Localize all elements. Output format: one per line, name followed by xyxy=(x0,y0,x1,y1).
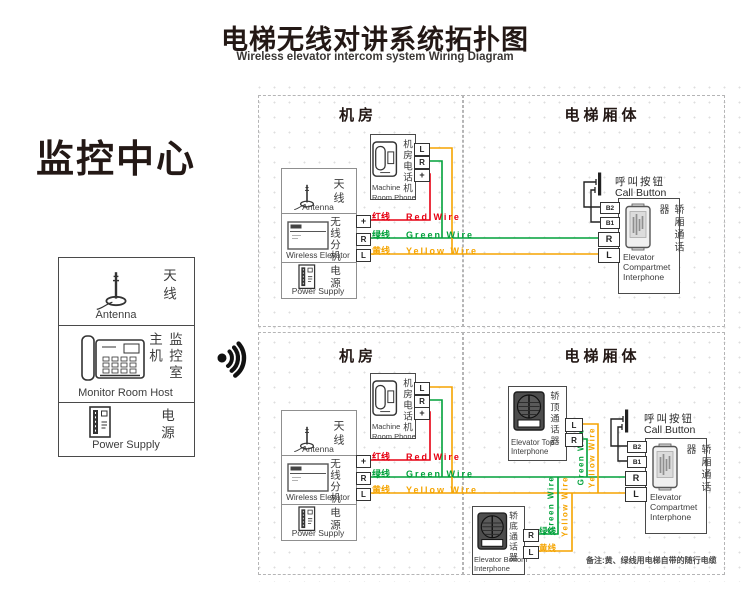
green-wire-vertical-label-1: Green Wire xyxy=(577,422,586,492)
wireless-box-bottom-divider-2 xyxy=(281,504,356,505)
wireless-box-bottom-divider-1 xyxy=(281,455,356,456)
terminal-R: R xyxy=(523,529,539,542)
terminal-R: R xyxy=(565,433,583,447)
wb-top-antenna-en: Antenna xyxy=(286,202,350,212)
wb-top-unit-en: Wireless Elevator xyxy=(281,251,355,260)
compartment-en2-bottom: Compartmet xyxy=(650,502,697,512)
terminal-L: L xyxy=(414,382,430,395)
terminal-B2: B2 xyxy=(600,202,620,214)
terminal-L: L xyxy=(523,546,539,559)
monitor-box-divider-2 xyxy=(58,402,194,403)
green-wire-label-bottom: 绿线Green Wire xyxy=(372,467,474,480)
yellow-wire-zh: 黄线 xyxy=(372,246,390,256)
terminal-L: L xyxy=(414,143,430,156)
green-wire-zh: 绿线 xyxy=(372,230,390,240)
monitor-antenna-label-en: Antenna xyxy=(78,309,154,321)
red-wire-label-top: 红线Red Wire xyxy=(372,210,461,223)
green-wire-zh: 绿线 xyxy=(372,469,390,479)
red-wire-en: Red Wire xyxy=(406,452,461,462)
terminal-plus: + xyxy=(414,169,430,182)
machine-room-phone-en1-top: Machine xyxy=(372,183,416,193)
yellow-wire-short-label: 黄线 xyxy=(539,542,556,554)
monitor-host-label-zh: 监控室主机 xyxy=(150,332,184,388)
red-wire-zh: 红线 xyxy=(372,452,390,462)
wiring-diagram-page: 电梯无线对讲系统拓扑图 Wireless elevator intercom s… xyxy=(0,0,750,589)
wb-bot-unit-en: Wireless Elevator xyxy=(281,493,355,502)
green-wire-en: Green Wire xyxy=(406,230,474,240)
yellow-wire-zh: 黄线 xyxy=(372,485,390,495)
compartment-en1-top: Elevator xyxy=(623,252,670,262)
call-button-label-en-bottom: Call Button xyxy=(644,424,695,436)
terminal-R: R xyxy=(625,471,647,486)
yellow-wire-label-bottom: 黄线Yellow Wire xyxy=(372,483,478,496)
yellow-wire-label-top: 黄线Yellow Wire xyxy=(372,244,478,257)
section-label-machine-room-bottom: 机房 xyxy=(308,345,408,366)
terminal-B1: B1 xyxy=(627,456,647,468)
compartment-en3-top: Interphone xyxy=(623,272,670,282)
region-top-elevator-car xyxy=(462,95,725,327)
call-button-label-en-top: Call Button xyxy=(615,187,666,199)
wireless-signal-icon xyxy=(216,342,246,377)
green-wire-vertical-label-2: Green Wire xyxy=(547,470,556,540)
terminal-R: R xyxy=(356,233,371,246)
yellow-wire-en: Yellow Wire xyxy=(406,246,478,256)
section-label-elevator-car-top: 电梯厢体 xyxy=(545,104,660,125)
terminal-R: R xyxy=(414,156,430,169)
terminal-R: R xyxy=(598,232,620,247)
machine-room-phone-en2-top: Room Phone xyxy=(372,193,416,203)
monitor-box-divider-1 xyxy=(58,325,194,326)
red-wire-label-bottom: 红线Red Wire xyxy=(372,450,461,463)
wireless-box-top-divider-2 xyxy=(281,262,356,263)
section-label-machine-room-top: 机房 xyxy=(308,104,408,125)
compartment-en1-bottom: Elevator xyxy=(650,492,697,502)
wb-bot-power-en: Power Supply xyxy=(283,528,353,538)
wb-top-power-en: Power Supply xyxy=(283,286,353,296)
machine-room-phone-en2-bottom: Room Phone xyxy=(372,432,416,442)
terminal-R: R xyxy=(356,472,371,485)
yellow-wire-vertical-label-2: Yellow Wire xyxy=(561,472,570,542)
monitor-host-label-en: Monitor Room Host xyxy=(60,387,191,399)
terminal-plus: + xyxy=(414,407,430,420)
monitor-antenna-label-zh: 天线 xyxy=(158,268,178,310)
wb-bot-antenna-en: Antenna xyxy=(286,444,350,454)
green-wire-label-top: 绿线Green Wire xyxy=(372,228,474,241)
yellow-wire-en: Yellow Wire xyxy=(406,485,478,495)
monitor-center-heading: 监控中心 xyxy=(36,128,196,183)
terminal-L: L xyxy=(625,487,647,502)
terminal-L: L xyxy=(598,248,620,263)
terminal-plus: + xyxy=(356,215,371,228)
green-wire-en: Green Wire xyxy=(406,469,474,479)
yellow-wire-vertical-label-1: Yellow Wire xyxy=(588,423,597,493)
diagram-note: 备注:黄、绿线用电梯自带的随行电缆 xyxy=(586,555,717,566)
terminal-plus: + xyxy=(356,455,371,468)
terminal-L: L xyxy=(356,249,371,262)
top-interphone-en1: Elevator Top xyxy=(511,438,554,447)
monitor-power-label-en: Power Supply xyxy=(66,439,186,451)
section-label-elevator-car-bottom: 电梯厢体 xyxy=(545,345,660,366)
terminal-B2: B2 xyxy=(627,441,647,453)
wireless-box-top-divider-1 xyxy=(281,213,356,214)
machine-room-phone-en1-bottom: Machine xyxy=(372,422,416,432)
top-interphone-en2: Interphone xyxy=(511,447,554,456)
terminal-B1: B1 xyxy=(600,217,620,229)
bottom-interphone-en1: Elevator Bottom xyxy=(474,555,527,564)
terminal-L: L xyxy=(565,418,583,432)
red-wire-zh: 红线 xyxy=(372,212,390,222)
page-subtitle: Wireless elevator intercom system Wiring… xyxy=(125,51,625,63)
red-wire-en: Red Wire xyxy=(406,212,461,222)
terminal-L: L xyxy=(356,488,371,501)
bottom-interphone-en2: Interphone xyxy=(474,564,527,573)
compartment-en2-top: Compartmet xyxy=(623,262,670,272)
compartment-en3-bottom: Interphone xyxy=(650,512,697,522)
